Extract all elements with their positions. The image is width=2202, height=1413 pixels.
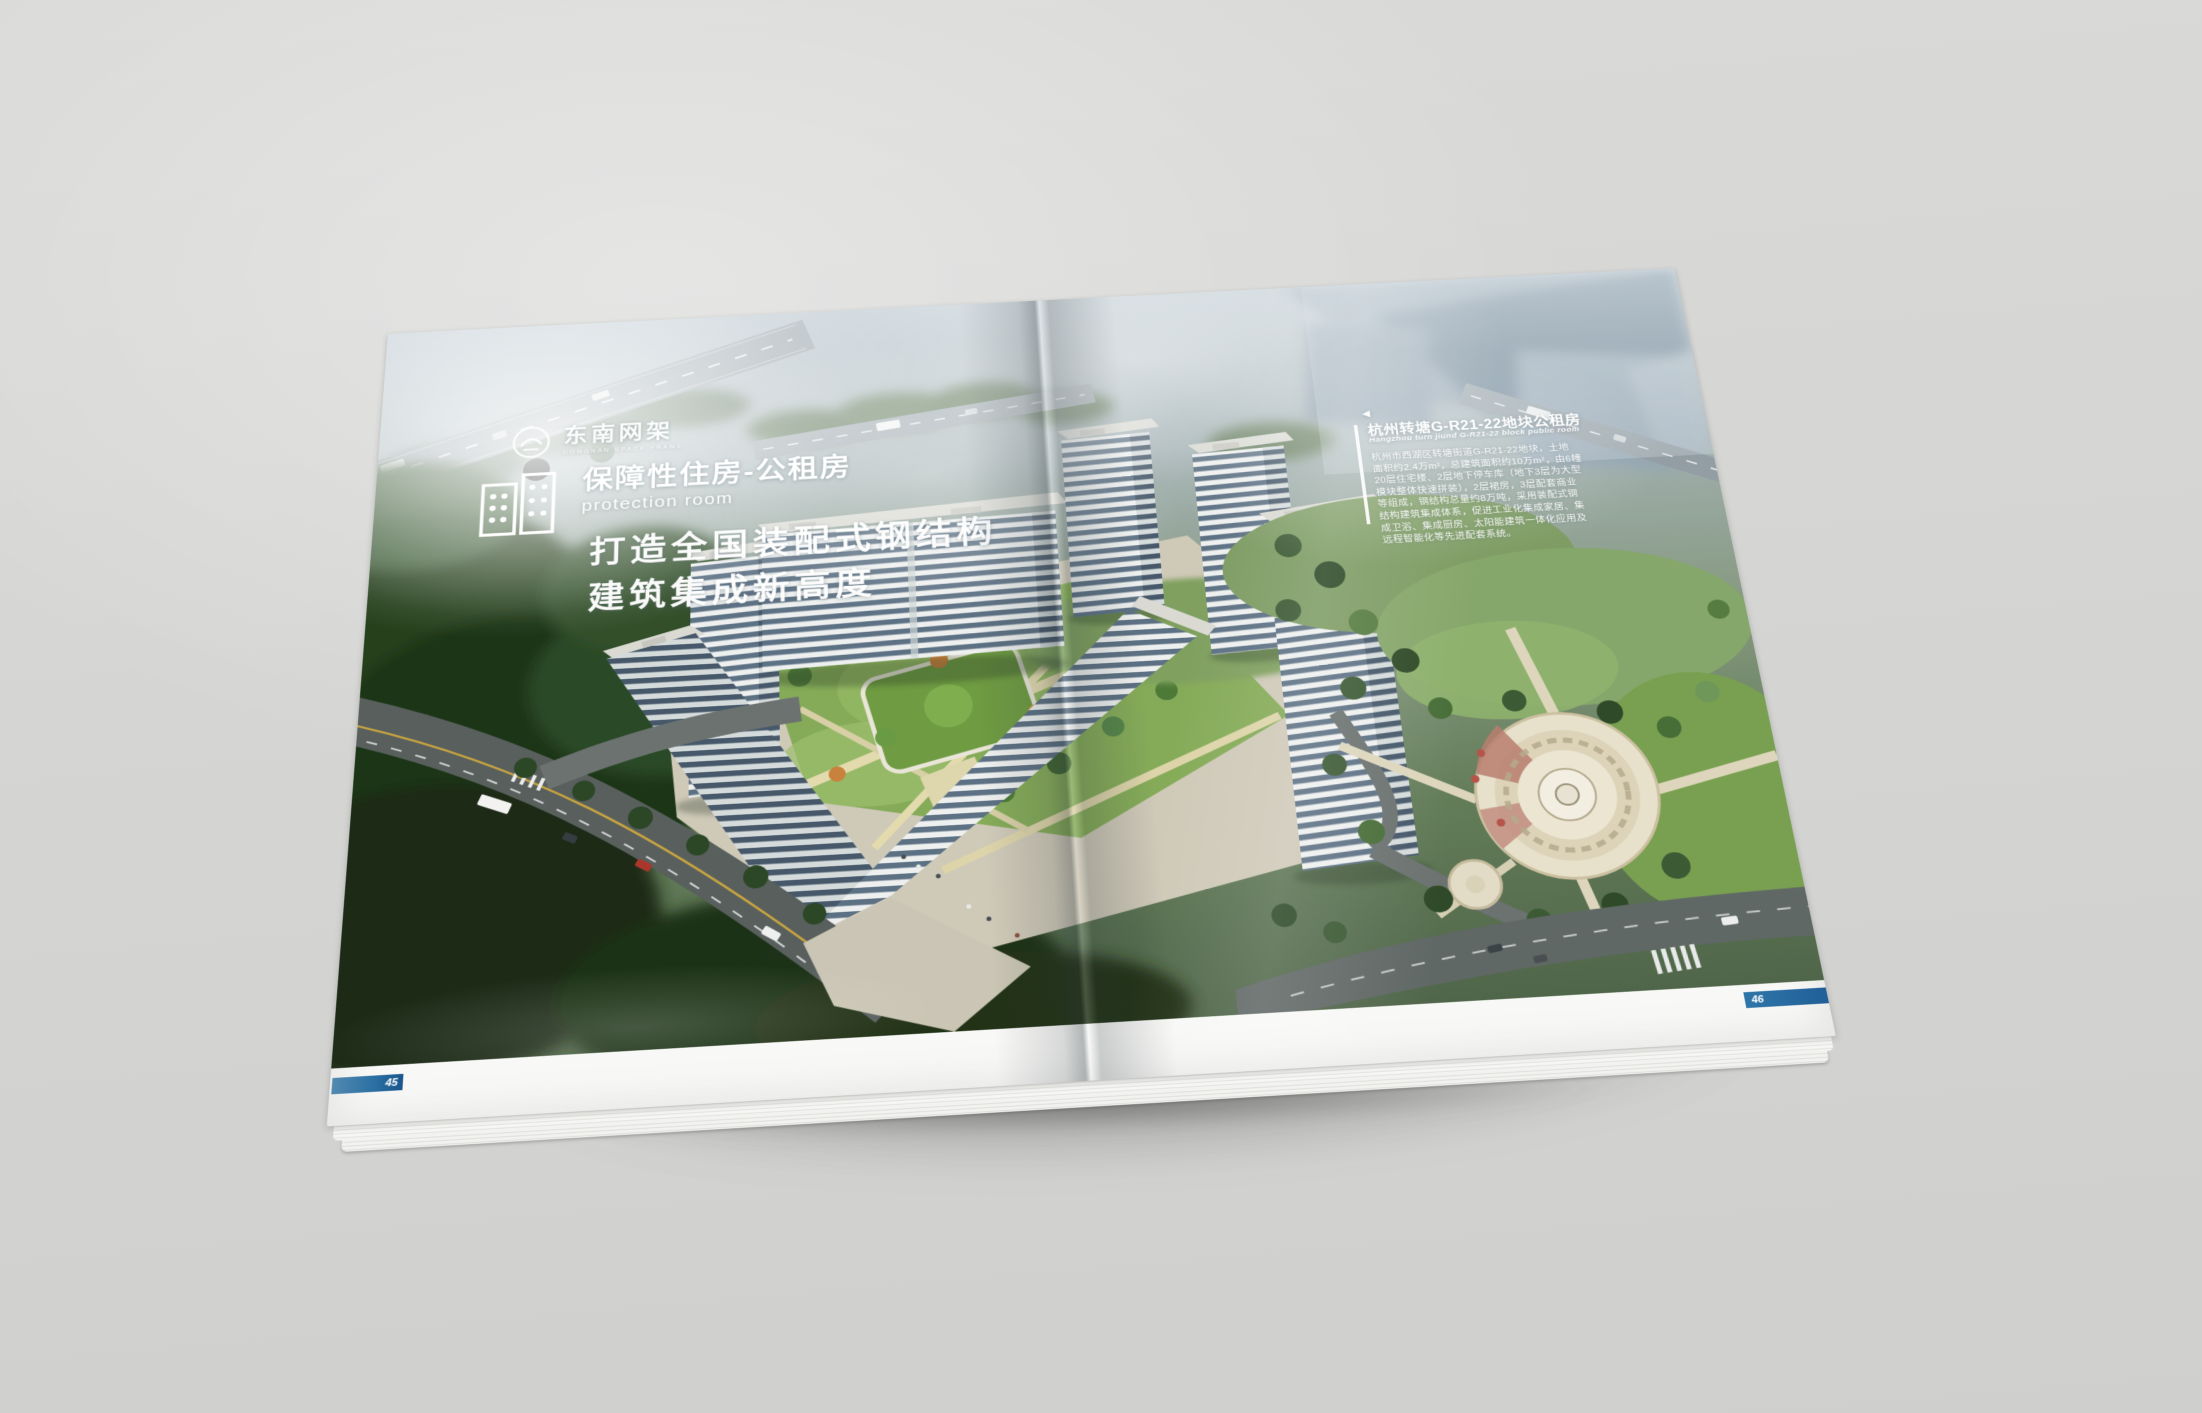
left-triangle-icon: ◀ [1361,408,1370,419]
logo-icon [510,424,552,460]
page-number-45: 45 [385,1077,398,1089]
buildings-icon [473,467,563,542]
aerial-render [331,268,1824,1069]
brochure-book: 东南网架 DONGNAN SPACE FRAME [324,268,1843,1161]
brochure-spread: 东南网架 DONGNAN SPACE FRAME [327,268,1836,1126]
page-number-46: 46 [1751,994,1765,1006]
page-number-bar-left: 45 [331,1074,403,1095]
photo-backdrop: 东南网架 DONGNAN SPACE FRAME [0,0,2202,1413]
page-number-bar-right: 46 [1743,987,1829,1008]
project-description: 杭州市西湖区转塘街道G-R21-22地块，土地 面积约2.4万m²，总建筑面积约… [1371,440,1619,547]
logo-text-block: 东南网架 DONGNAN SPACE FRAME [563,420,684,455]
